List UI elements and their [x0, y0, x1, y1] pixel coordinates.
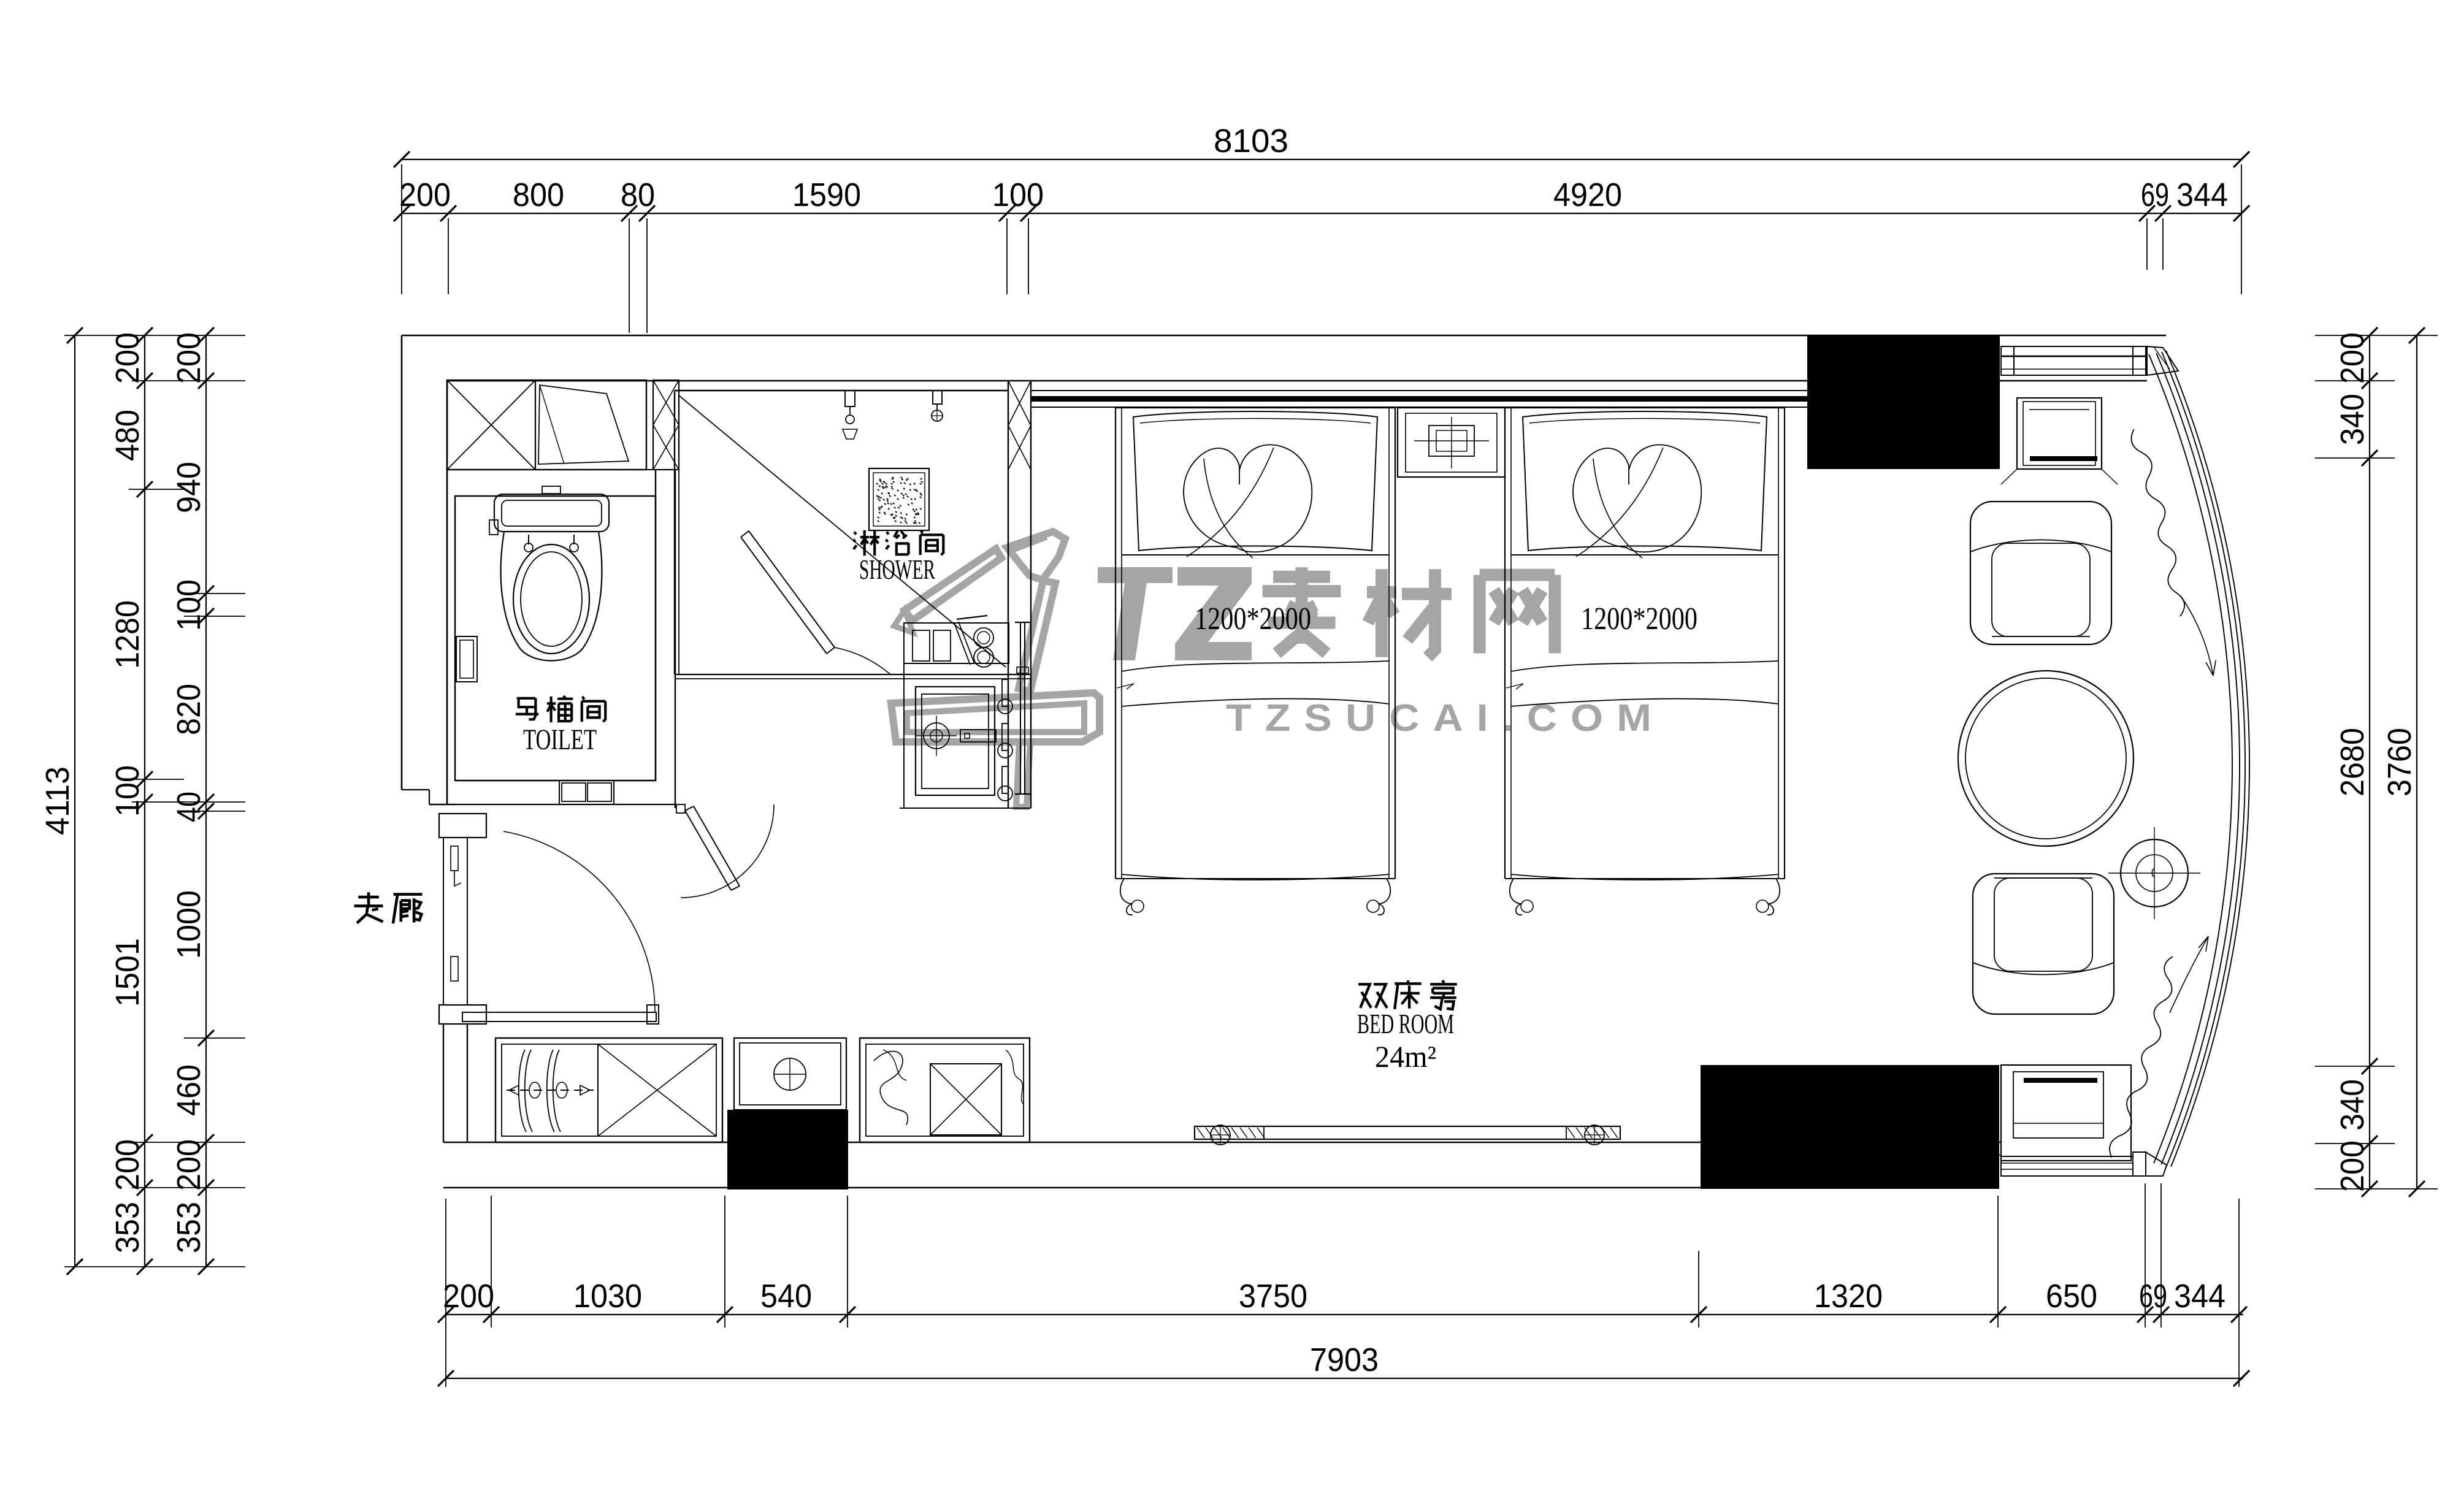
svg-text:460: 460 — [170, 1064, 207, 1116]
svg-text:820: 820 — [170, 684, 207, 735]
svg-text:1501: 1501 — [109, 938, 146, 1007]
svg-text:353: 353 — [170, 1202, 207, 1253]
svg-text:4920: 4920 — [1553, 177, 1622, 213]
svg-text:69: 69 — [2139, 1278, 2167, 1315]
svg-text:100: 100 — [109, 765, 146, 817]
svg-text:940: 940 — [170, 462, 207, 513]
svg-text:69: 69 — [2141, 177, 2169, 213]
svg-text:2680: 2680 — [2334, 728, 2371, 796]
svg-text:4113: 4113 — [39, 766, 76, 835]
svg-text:1200*2000: 1200*2000 — [1195, 601, 1311, 636]
svg-text:200: 200 — [2334, 1140, 2371, 1192]
svg-text:200: 200 — [109, 332, 146, 384]
svg-text:340: 340 — [2334, 394, 2371, 445]
svg-text:344: 344 — [2174, 1278, 2225, 1315]
svg-text:80: 80 — [621, 177, 655, 213]
svg-text:1280: 1280 — [109, 600, 146, 669]
svg-text:200: 200 — [443, 1278, 494, 1315]
svg-text:1590: 1590 — [792, 177, 861, 213]
svg-text:SHOWER: SHOWER — [859, 554, 935, 585]
svg-text:8103: 8103 — [1214, 123, 1288, 159]
svg-text:100: 100 — [992, 177, 1044, 213]
svg-text:3760: 3760 — [2381, 728, 2418, 796]
svg-text:540: 540 — [760, 1278, 812, 1315]
svg-text:353: 353 — [109, 1202, 146, 1253]
svg-text:200: 200 — [170, 332, 207, 384]
svg-text:200: 200 — [399, 177, 451, 213]
svg-text:1200*2000: 1200*2000 — [1581, 601, 1697, 636]
svg-text:TZSUCAI.COM: TZSUCAI.COM — [1226, 697, 1665, 739]
svg-text:344: 344 — [2176, 177, 2228, 213]
svg-text:100: 100 — [170, 579, 207, 631]
svg-text:200: 200 — [2334, 332, 2371, 384]
svg-text:800: 800 — [513, 177, 564, 213]
svg-text:3750: 3750 — [1239, 1278, 1307, 1315]
svg-text:TOILET: TOILET — [523, 724, 597, 756]
svg-text:200: 200 — [109, 1139, 146, 1191]
svg-text:40: 40 — [170, 792, 207, 822]
svg-text:1000: 1000 — [170, 890, 207, 959]
svg-text:1320: 1320 — [1814, 1278, 1883, 1315]
svg-text:7903: 7903 — [1310, 1342, 1379, 1378]
svg-text:200: 200 — [170, 1139, 207, 1191]
svg-text:480: 480 — [109, 410, 146, 461]
svg-text:24m²: 24m² — [1375, 1039, 1436, 1074]
svg-text:340: 340 — [2334, 1079, 2371, 1131]
svg-text:650: 650 — [2046, 1278, 2097, 1315]
svg-text:BED ROOM: BED ROOM — [1357, 1008, 1454, 1039]
svg-text:1030: 1030 — [573, 1278, 642, 1315]
